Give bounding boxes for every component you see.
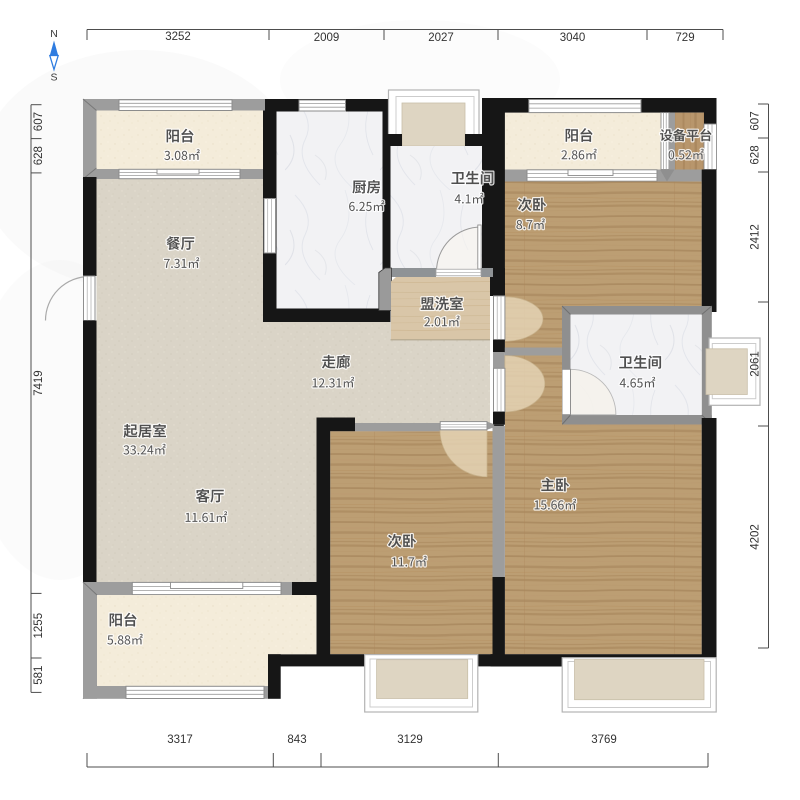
svg-text:2027: 2027 — [428, 32, 454, 44]
svg-text:3317: 3317 — [167, 734, 193, 746]
svg-text:581: 581 — [33, 666, 45, 685]
svg-text:4202: 4202 — [750, 524, 762, 550]
svg-text:607: 607 — [750, 111, 762, 130]
svg-text:628: 628 — [33, 146, 45, 165]
svg-text:3252: 3252 — [165, 31, 191, 43]
svg-text:3040: 3040 — [560, 32, 586, 44]
svg-text:2009: 2009 — [314, 32, 340, 44]
svg-text:607: 607 — [33, 112, 45, 131]
svg-text:843: 843 — [287, 734, 306, 746]
svg-text:3129: 3129 — [397, 734, 423, 746]
svg-text:S: S — [50, 72, 57, 84]
svg-text:3769: 3769 — [591, 734, 617, 746]
svg-text:1255: 1255 — [33, 613, 45, 639]
svg-text:628: 628 — [750, 145, 762, 164]
svg-text:2412: 2412 — [750, 224, 762, 250]
svg-text:2061: 2061 — [750, 351, 762, 377]
svg-text:729: 729 — [675, 32, 694, 44]
svg-text:N: N — [50, 28, 58, 40]
svg-text:7419: 7419 — [33, 370, 45, 396]
